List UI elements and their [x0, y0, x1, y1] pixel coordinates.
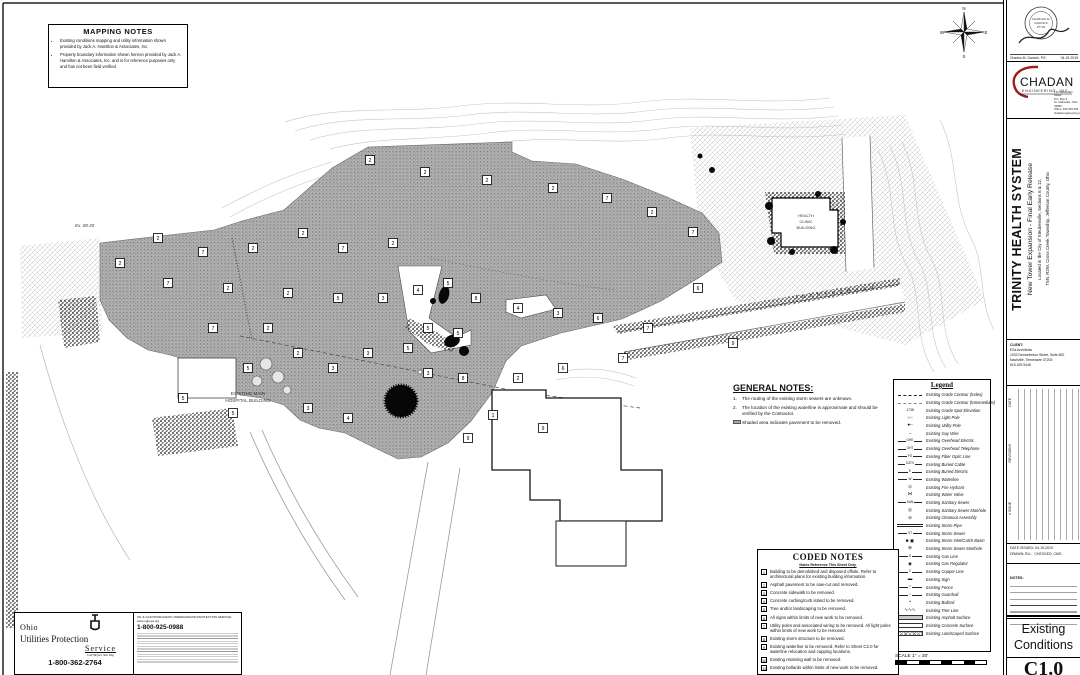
mapping-note-item: Property boundary information shown here…: [60, 52, 183, 69]
coded-note-ref-number: 7: [202, 250, 205, 256]
project-location-1: Located in the City of Steubenville, Sec…: [1037, 179, 1042, 280]
legend-symbol-line-icon: SAN: [897, 499, 923, 505]
legend-item-label: Existing Bollard: [926, 600, 954, 605]
legend-item: FOExisting Fiber Optic Line: [897, 453, 987, 461]
legend-symbol-label: W: [907, 478, 912, 481]
title-block: CHARLES M. GARVICK #7734 Charles M. Garv…: [1003, 0, 1080, 675]
clinic-label-2: CLINIC: [799, 219, 812, 224]
coded-note-text: All signs within limits of new work to b…: [770, 615, 863, 621]
hospital-label-1: EXISTING MAIN: [231, 391, 265, 396]
coded-note-text: Concrete curbing/curb island to be remov…: [770, 598, 855, 604]
coded-note-ref-number: 2: [119, 261, 122, 267]
legend-item: ●–Existing Utility Pole: [897, 422, 987, 430]
road-north-south: [842, 136, 874, 272]
engineer-seal-icon: CHARLES M. GARVICK #7734: [1013, 1, 1073, 51]
legend-item: OHTExisting Overhead Telephone: [897, 445, 987, 453]
coded-note-number: 5: [761, 606, 767, 612]
legend-item: ∿∿∿Existing Tree Line: [897, 606, 987, 614]
legend-item: •Existing Guardrail: [897, 591, 987, 599]
coded-note-ref-number: 4: [517, 306, 520, 312]
coded-note-text: Existing waterline to be removed. Refer …: [770, 644, 895, 655]
legend-item-label: Existing Guardrail: [926, 592, 958, 597]
project-subtitle: New Tower Expansion - Final Early Releas…: [1027, 163, 1034, 295]
coded-note-ref-number: 3: [307, 406, 310, 412]
coded-notes-list: 1Building to be demolished and disposed …: [761, 569, 895, 671]
coded-note-text: Tree and/or landscaping to be removed.: [770, 606, 846, 612]
legend-symbol-glyph-icon: ■ ▣: [897, 538, 923, 544]
coded-note-ref-number: 7: [212, 326, 215, 332]
legend-item: ○–Existing Light Pole: [897, 414, 987, 422]
legend-symbol-label: OHE: [906, 439, 915, 442]
coded-note-item: 4Concrete curbing/curb island to be remo…: [761, 598, 895, 604]
engineer-seal-section: CHARLES M. GARVICK #7734 Charles M. Garv…: [1007, 0, 1080, 62]
seal-date: 04-19-2019: [1061, 56, 1078, 60]
legend-symbol-glyph-icon: ●–: [897, 423, 923, 429]
coded-note-item: 9Existing waterline to be removed. Refer…: [761, 644, 895, 655]
hospital-building-outline: [492, 390, 662, 521]
legend-symbol-glyph-icon: ⊙: [897, 484, 923, 490]
legend-symbol-glyph-icon: ○–: [897, 415, 923, 421]
notes-section: NOTES:: [1007, 564, 1080, 616]
notes-label: NOTES:: [1010, 576, 1024, 580]
landscape-strip-bottom-left: [152, 408, 238, 456]
mapping-notes-panel: MAPPING NOTES Existing conditions mappin…: [48, 24, 188, 88]
coded-note-number: 3: [761, 590, 767, 596]
legend-item: WExisting Waterline: [897, 476, 987, 484]
legend-item-label: Existing Guy Wire: [926, 431, 959, 436]
legend-item: EExisting Buried Electric: [897, 468, 987, 476]
legend-item: CExisting Copper Line: [897, 568, 987, 576]
legend-item-label: Existing Gas Regulator: [926, 561, 968, 566]
legend-symbol-label: •: [908, 593, 911, 596]
svg-text:W: W: [940, 30, 945, 35]
coded-note-ref-number: 7: [167, 281, 170, 287]
legend-title: Legend: [897, 381, 987, 389]
legend-symbol-label: CATV: [905, 462, 915, 465]
firm-address-line: chadanengineering.net: [1054, 112, 1080, 115]
coded-note-ref-number: 1: [492, 413, 495, 419]
coded-note-ref-number: 6: [597, 316, 600, 322]
legend-item-label: Existing Concrete Surface: [926, 623, 973, 628]
sheet-number: C1.0: [1007, 658, 1080, 675]
mapping-notes-title: MAPPING NOTES: [53, 27, 183, 36]
hospital-label-2: HOSPITAL BUILDING: [225, 398, 271, 403]
legend-item-label: Existing Waterline: [926, 477, 959, 482]
legend-symbol-glyph-icon: ⊘: [897, 515, 923, 521]
legend-item-label: Existing Overhead Electric: [926, 438, 974, 443]
general-note-text: The routing of the existing storm sewers…: [742, 396, 852, 402]
legend-item: OHEExisting Overhead Electric: [897, 437, 987, 445]
coded-note-ref-number: 7: [692, 230, 695, 236]
coded-note-ref-number: 3: [427, 371, 430, 377]
coded-note-ref-number: 4: [417, 288, 420, 294]
legend-item-label: Existing Sanitary Sewer: [926, 500, 969, 505]
legend-item-label: Existing Overhead Telephone: [926, 446, 980, 451]
legend-symbol-label: SAN: [906, 501, 915, 504]
coded-note-text: Concrete sidewalk to be removed.: [770, 590, 835, 596]
revisions-table: DATE REVISIONS # ISSUE: [1007, 386, 1080, 544]
legend-item: ⊕Existing Storm Sewer Manhole: [897, 545, 987, 553]
coded-note-number: 9: [761, 644, 767, 650]
legend-item-label: Existing Landscaped Surface: [926, 631, 979, 636]
legend-item: Existing Asphalt Surface: [897, 614, 987, 622]
general-notes-panel: GENERAL NOTES: 1.The routing of the exis…: [733, 383, 885, 429]
coded-note-ref-number: 7: [342, 246, 345, 252]
legend-symbol-glyph-icon: ◉: [897, 561, 923, 567]
oups-panel: Ohio Utilities Protection Service Call B…: [14, 612, 242, 675]
coded-note-item: 11Existing bollards within limits of new…: [761, 665, 895, 671]
drawn-by: DRAWN: RLL: [1010, 552, 1031, 556]
legend-symbol-label: G: [908, 555, 912, 558]
coded-note-ref-number: 3: [382, 296, 385, 302]
coded-note-ref-number: 2: [227, 286, 230, 292]
shaded-area-note: Shaded area indicates pavement to be rem…: [733, 420, 885, 426]
legend-item-label: Existing Fiber Optic Line: [926, 454, 970, 459]
svg-text:E: E: [984, 30, 987, 35]
legend-item: ▬Existing Sign: [897, 576, 987, 584]
coded-note-ref-number: 7: [647, 326, 650, 332]
legend-symbol-line-icon: OHT: [897, 446, 923, 452]
legend-symbol-label: ST: [907, 532, 913, 535]
client-section: CLIENT: ESa Architects1033 Demonbreun St…: [1007, 340, 1080, 386]
legend-item-label: Existing Grade Contour (Index): [926, 392, 982, 397]
coded-note-text: Asphalt pavement to be saw-cut and remov…: [770, 582, 859, 588]
coded-note-ref-number: 7: [606, 196, 609, 202]
legend-item-label: Existing Water Valve: [926, 492, 964, 497]
legend-symbol-glyph-icon: ∿∿∿: [897, 607, 923, 613]
legend-symbol-line-icon: W: [897, 476, 923, 482]
coded-note-text: Utility poles and associated wiring to b…: [770, 623, 895, 634]
coded-note-ref-number: 8: [462, 376, 465, 382]
coded-note-ref-number: 2: [267, 326, 270, 332]
coded-note-item: 3Concrete sidewalk to be removed.: [761, 590, 895, 596]
svg-text:#7734: #7734: [1037, 25, 1046, 29]
legend-item: 1738Existing Grade Spot Elevation: [897, 406, 987, 414]
legend-symbol-glyph-icon: ⊕: [897, 546, 923, 552]
clinic-label-3: BUILDING: [797, 225, 816, 230]
legend-item: Existing Storm Pipe: [897, 522, 987, 530]
legend-item-label: Existing Buried Electric: [926, 469, 968, 474]
coded-note-ref-number: 5: [457, 331, 460, 337]
legend-item-label: Existing Grade Spot Elevation: [926, 408, 980, 413]
legend-symbol-line-icon: CATV: [897, 461, 923, 467]
scale-bar-graphic: [895, 660, 987, 665]
legend-symbol-label: C: [908, 570, 912, 573]
general-note-item: 1.The routing of the existing storm sewe…: [733, 396, 885, 402]
coded-note-ref-number: 5: [182, 396, 185, 402]
coded-note-number: 10: [761, 657, 767, 663]
legend-symbol-line-icon: ST: [897, 530, 923, 536]
legend-list: Existing Grade Contour (Index)Existing G…: [897, 391, 987, 637]
oups-right-heading: OIL & GAS PRODUCERS UNDERGROUND PROTECTI…: [137, 616, 238, 623]
oups-brand-service: Service: [20, 644, 116, 653]
coded-note-ref-number: 3: [557, 311, 560, 317]
general-notes-title: GENERAL NOTES:: [733, 383, 885, 393]
legend-symbol-dbl-icon: [897, 524, 923, 527]
treeline-left: [58, 296, 100, 348]
legend-item-label: Existing Storm Inlet/Catch Basin: [926, 538, 984, 543]
coded-note-ref-number: 3: [332, 366, 335, 372]
coded-note-ref-number: 5: [407, 346, 410, 352]
legend-item-label: Existing Fire Hydrant: [926, 485, 964, 490]
coded-note-ref-number: 5: [427, 326, 430, 332]
legend-item: Existing Landscaped Surface: [897, 629, 987, 637]
oups-brand-utilities: Utilities Protection: [20, 634, 130, 644]
coded-note-ref-number: 2: [297, 351, 300, 357]
legend-symbol-glyph-icon: •: [897, 599, 923, 605]
legend-item-label: Existing Storm Sewer: [926, 531, 965, 536]
oups-logo: Ohio Utilities Protection Service Call B…: [15, 613, 133, 674]
coded-note-item: 7Utility poles and associated wiring to …: [761, 623, 895, 634]
client-lines: ESa Architects1033 Demonbreun Street, Su…: [1010, 348, 1077, 368]
coded-note-ref-number: 2: [302, 231, 305, 237]
legend-item: ◉Existing Gas Regulator: [897, 560, 987, 568]
general-note-item: 2.The location of the existing waterline…: [733, 405, 885, 417]
coded-note-ref-number: 7: [622, 356, 625, 362]
coded-note-text: Existing bollards within limits of new w…: [770, 665, 878, 671]
general-note-number: 2.: [733, 405, 742, 417]
legend-item-label: Existing Fence: [926, 585, 953, 590]
revisions-col-issue: # ISSUE: [1008, 502, 1012, 515]
legend-item-label: Existing Cleanout Assembly: [926, 515, 977, 520]
legend-item-label: Existing Sanitary Sewer Manhole: [926, 508, 986, 513]
coded-note-item: 1Building to be demolished and disposed …: [761, 569, 895, 580]
scale-bar: SCALE 1" = 30': [895, 654, 991, 665]
coded-notes-title: CODED NOTES: [761, 552, 895, 562]
coded-note-ref-number: 5: [232, 411, 235, 417]
legend-symbol-label: FO: [907, 455, 913, 458]
shaded-area-swatch: [733, 420, 741, 424]
legend-item: ⊘Existing Cleanout Assembly: [897, 514, 987, 522]
revisions-col-revisions: REVISIONS: [1008, 444, 1012, 462]
legend-symbol-line-icon: •: [897, 592, 923, 598]
drawing-sheet: 2222727272272272253458436555323382994572…: [0, 0, 1080, 675]
exhibit-ref-label: Ex. 08-20: [75, 223, 95, 228]
legend-symbol-glyph-icon: ◎: [897, 507, 923, 513]
embankment-left-edge: [6, 372, 18, 628]
coded-note-ref-number: 5: [337, 296, 340, 302]
hospital-wing-outline: [556, 521, 626, 566]
coded-note-item: 10Existing retaining wall to be removed.: [761, 657, 895, 663]
client-label: CLIENT:: [1010, 343, 1023, 347]
scale-label: SCALE 1" = 30': [895, 654, 991, 659]
legend-item-label: Existing Buried Cable: [926, 462, 965, 467]
legend-symbol-line-icon: E: [897, 469, 923, 475]
legend-item-label: Existing Asphalt Surface: [926, 615, 970, 620]
legend-item-label: Existing Tree Line: [926, 608, 958, 613]
legend-item-label: Existing Storm Sewer Manhole: [926, 546, 982, 551]
legend-item: Existing Concrete Surface: [897, 622, 987, 630]
legend-item: ⊙Existing Fire Hydrant: [897, 483, 987, 491]
coded-note-ref-number: 5: [447, 281, 450, 287]
dig-plug-icon: [85, 613, 105, 633]
coded-note-ref-number: 2: [287, 291, 290, 297]
revisions-grid: [1018, 389, 1079, 540]
engineer-name: Charles M. Garvick, P.E.: [1010, 56, 1047, 60]
legend-item-label: Existing Storm Pipe: [926, 523, 962, 528]
legend-item: Existing Grade Contour (Index): [897, 391, 987, 399]
coded-note-number: 8: [761, 636, 767, 642]
legend-symbol-label: E: [908, 470, 912, 473]
coded-note-ref-number: 9: [732, 341, 735, 347]
oups-right-phone: 1-800-925-0988: [137, 624, 238, 631]
legend-symbol-spot-icon: 1738: [897, 407, 923, 413]
legend-symbol-swatch-a-icon: [897, 615, 923, 620]
legend-item: STExisting Storm Sewer: [897, 529, 987, 537]
oups-gas-producers: OIL & GAS PRODUCERS UNDERGROUND PROTECTI…: [133, 613, 241, 674]
coded-note-ref-number: 6: [697, 286, 700, 292]
coded-note-item: 5Tree and/or landscaping to be removed.: [761, 606, 895, 612]
coded-note-ref-number: 3: [367, 351, 370, 357]
coded-note-ref-number: 2: [252, 246, 255, 252]
svg-text:CHADAN: CHADAN: [1020, 75, 1074, 89]
coded-notes-subtitle: Notes Reference This Sheet Only.: [761, 563, 895, 567]
revisions-col-date: DATE: [1008, 398, 1012, 407]
legend-panel: Legend Existing Grade Contour (Index)Exi…: [893, 379, 991, 652]
firm-logo-section: CHADAN ENGINEERING, INC. 171 West Main S…: [1007, 62, 1080, 119]
legend-item: ×Existing Fence: [897, 583, 987, 591]
coded-note-item: 8Existing storm structure to be removed.: [761, 636, 895, 642]
legend-symbol-line-icon: C: [897, 569, 923, 575]
coded-note-number: 7: [761, 623, 767, 629]
coded-note-number: 11: [761, 665, 767, 671]
mapping-note-item: Existing conditions mapping and utility …: [60, 38, 183, 49]
coded-note-text: Existing storm structure to be removed.: [770, 636, 845, 642]
svg-text:N: N: [962, 6, 965, 11]
coded-note-number: 1: [761, 569, 767, 575]
coded-note-number: 4: [761, 598, 767, 604]
coded-note-ref-number: 2: [424, 170, 427, 176]
legend-symbol-glyph-icon: →: [897, 430, 923, 436]
general-notes-list: 1.The routing of the existing storm sewe…: [733, 396, 885, 417]
mapping-notes-list: Existing conditions mapping and utility …: [53, 38, 183, 69]
coded-note-ref-number: 2: [517, 376, 520, 382]
legend-symbol-label: ×: [908, 585, 912, 588]
checked-by: CHECKED: CMG: [1034, 552, 1061, 556]
legend-symbol-line-icon: G: [897, 553, 923, 559]
legend-symbol-label: OHT: [906, 447, 915, 450]
legend-item-label: Existing Gas Line: [926, 554, 958, 559]
coded-note-ref-number: 2: [651, 210, 654, 216]
coded-note-ref-number: 2: [369, 158, 372, 164]
legend-item: ■ ▣Existing Storm Inlet/Catch Basin: [897, 537, 987, 545]
project-location-2: T6N, R2W, Cross Creek Township, Jefferso…: [1045, 172, 1050, 285]
coded-note-ref-number: 2: [157, 236, 160, 242]
legend-symbol-glyph-icon: ▬: [897, 576, 923, 582]
coded-note-ref-number: 5: [247, 366, 250, 372]
sheet-title: Existing Conditions: [1007, 616, 1080, 658]
coded-note-ref-number: 2: [486, 178, 489, 184]
coded-note-ref-number: 9: [542, 426, 545, 432]
legend-symbol-swatch-c-icon: [897, 623, 923, 628]
coded-note-ref-number: 8: [475, 296, 478, 302]
oups-phone: 1-800-362-2764: [20, 658, 130, 667]
client-line: 615.329.9445: [1010, 363, 1077, 368]
legend-item: Existing Grade Contour (Intermediate): [897, 399, 987, 407]
legend-symbol-line-icon: OHE: [897, 438, 923, 444]
coded-note-ref-number: 9: [467, 436, 470, 442]
legend-item: •Existing Bollard: [897, 599, 987, 607]
legend-item: SANExisting Sanitary Sewer: [897, 499, 987, 507]
coded-note-number: 6: [761, 615, 767, 621]
coded-note-ref-number: 6: [562, 366, 565, 372]
legend-item: GExisting Gas Line: [897, 552, 987, 560]
legend-item-label: Existing Sign: [926, 577, 950, 582]
legend-item-label: Existing Light Pole: [926, 415, 960, 420]
coded-note-ref-number: 2: [552, 186, 555, 192]
coded-note-ref-number: 4: [347, 416, 350, 422]
coded-notes-panel: CODED NOTES Notes Reference This Sheet O…: [757, 549, 899, 675]
coded-note-number: 2: [761, 582, 767, 588]
compass-rose-icon: N S E W: [940, 5, 988, 63]
oups-tagline: Call Before You Dig: [20, 653, 114, 657]
legend-item-label: Existing Utility Pole: [926, 423, 961, 428]
legend-symbol-dash2-icon: [897, 400, 923, 406]
legend-symbol-line-icon: ×: [897, 584, 923, 590]
clinic-label-1: HEALTH: [798, 213, 814, 218]
firm-address: 171 West Main StreetP.O. Box 9St. Clairs…: [1054, 91, 1080, 115]
legend-item: CATVExisting Buried Cable: [897, 460, 987, 468]
general-note-number: 1.: [733, 396, 742, 402]
project-title-section: TRINITY HEALTH SYSTEM New Tower Expansio…: [1007, 119, 1080, 340]
oups-brand-ohio: Ohio: [20, 623, 38, 632]
legend-symbol-glyph-icon: ⋈: [897, 492, 923, 498]
issued-section: DATE ISSUED: 04-19-2019 DRAWN: RLL CHECK…: [1007, 544, 1080, 564]
coded-note-ref-number: 2: [392, 241, 395, 247]
coded-note-item: 2Asphalt pavement to be saw-cut and remo…: [761, 582, 895, 588]
coded-note-text: Building to be demolished and disposed o…: [770, 569, 895, 580]
legend-symbol-swatch-l-icon: [897, 631, 923, 636]
legend-item: ◎Existing Sanitary Sewer Manhole: [897, 506, 987, 514]
coded-note-text: Existing retaining wall to be removed.: [770, 657, 841, 663]
svg-text:S: S: [962, 54, 965, 59]
general-note-text: The location of the existing waterline i…: [742, 405, 885, 417]
legend-item-label: Existing Copper Line: [926, 569, 964, 574]
project-title: TRINITY HEALTH SYSTEM: [1010, 148, 1024, 311]
oups-fine-print: [137, 633, 238, 663]
legend-symbol-dash-icon: [897, 392, 923, 398]
coded-note-item: 6All signs within limits of new work to …: [761, 615, 895, 621]
legend-item-label: Existing Grade Contour (Intermediate): [926, 400, 995, 405]
legend-item: ⋈Existing Water Valve: [897, 491, 987, 499]
canopy-outline: [178, 358, 236, 398]
legend-item: →Existing Guy Wire: [897, 429, 987, 437]
legend-symbol-line-icon: FO: [897, 453, 923, 459]
